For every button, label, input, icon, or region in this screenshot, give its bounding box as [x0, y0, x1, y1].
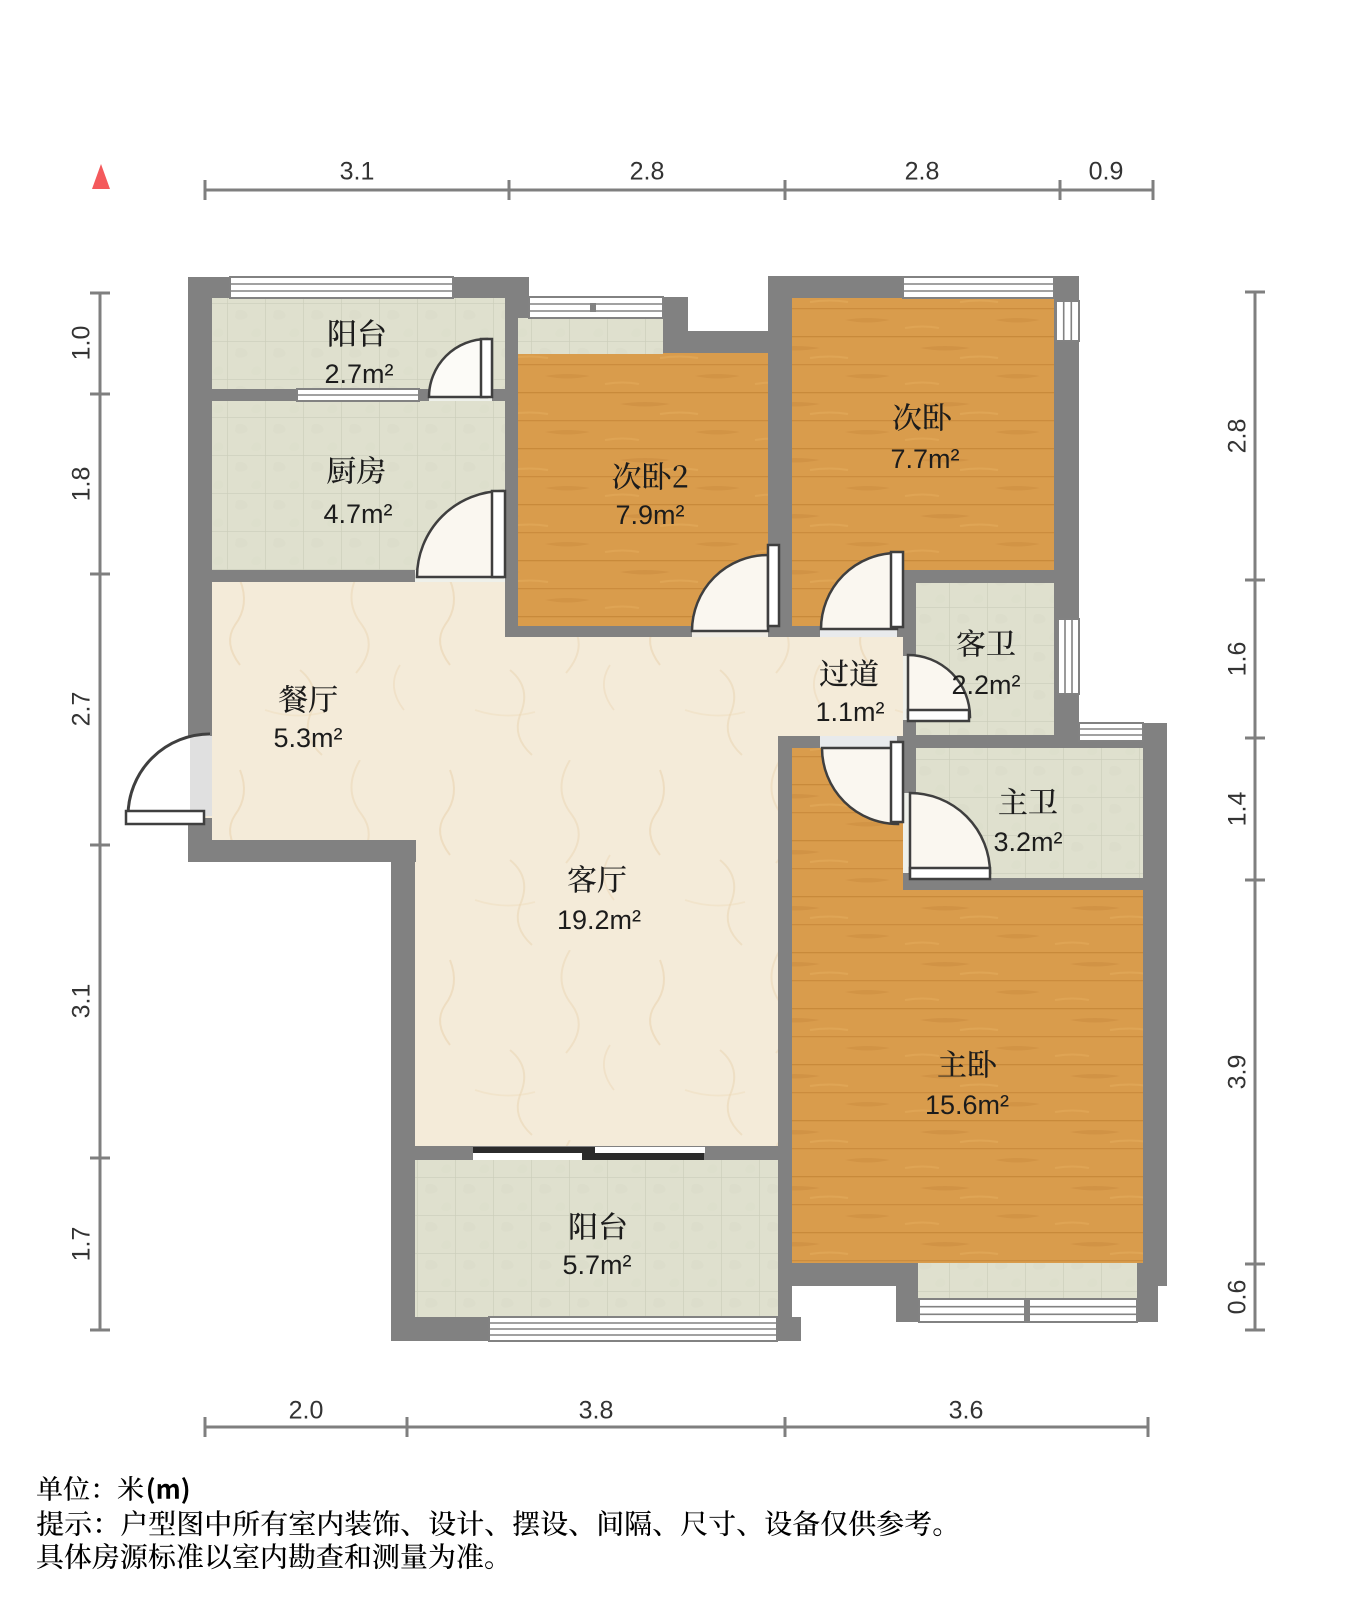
svg-text:1.6: 1.6	[1224, 642, 1252, 677]
svg-text:4.7m²: 4.7m²	[323, 499, 392, 529]
svg-text:2.2m²: 2.2m²	[951, 670, 1020, 700]
svg-text:3.1: 3.1	[68, 984, 96, 1019]
svg-text:3.6: 3.6	[949, 1397, 984, 1425]
svg-text:1.8: 1.8	[68, 467, 96, 502]
svg-text:2.7m²: 2.7m²	[324, 359, 393, 389]
svg-text:2.8: 2.8	[630, 158, 665, 186]
svg-text:1.0: 1.0	[68, 326, 96, 361]
svg-text:3.2m²: 3.2m²	[993, 827, 1062, 857]
svg-text:2.8: 2.8	[1224, 419, 1252, 454]
svg-text:2.7: 2.7	[68, 692, 96, 727]
svg-text:2.0: 2.0	[289, 1397, 324, 1425]
svg-text:3.1: 3.1	[340, 158, 375, 186]
svg-text:19.2m²: 19.2m²	[557, 905, 641, 935]
svg-text:0.6: 0.6	[1224, 1280, 1252, 1315]
svg-text:1.4: 1.4	[1224, 792, 1252, 827]
svg-text:0.9: 0.9	[1089, 158, 1124, 186]
svg-text:1.1m²: 1.1m²	[815, 697, 884, 727]
svg-text:2.8: 2.8	[905, 158, 940, 186]
svg-text:7.7m²: 7.7m²	[890, 444, 959, 474]
svg-text:5.3m²: 5.3m²	[273, 723, 342, 753]
svg-text:3.9: 3.9	[1224, 1055, 1252, 1090]
svg-text:15.6m²: 15.6m²	[925, 1090, 1009, 1120]
svg-text:5.7m²: 5.7m²	[562, 1250, 631, 1280]
svg-text:7.9m²: 7.9m²	[615, 500, 684, 530]
svg-text:1.7: 1.7	[68, 1227, 96, 1262]
svg-text:3.8: 3.8	[579, 1397, 614, 1425]
